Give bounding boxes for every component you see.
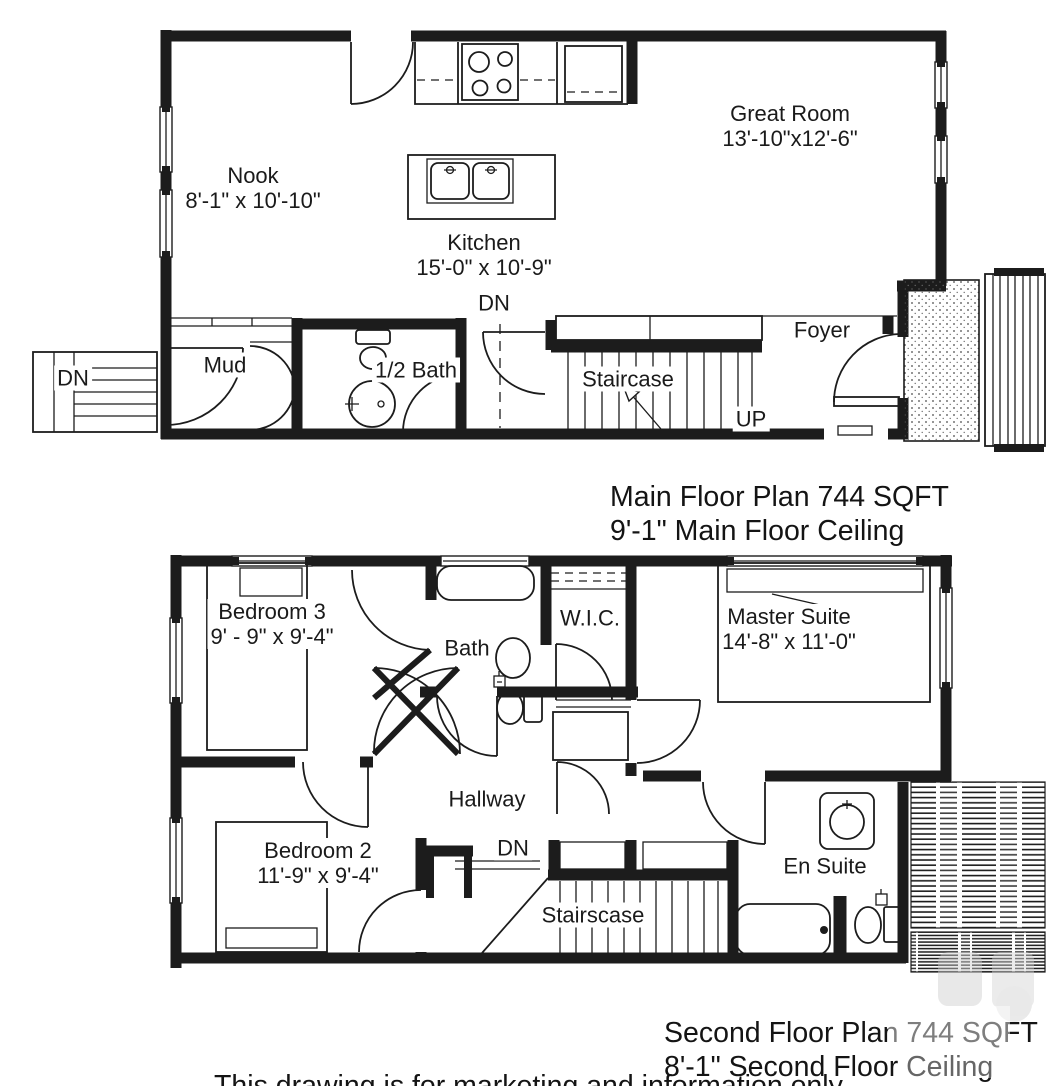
rear-deck: [911, 782, 1045, 972]
linen-closet: [553, 712, 628, 814]
room-dims: 15'-0" x 10'-9": [413, 255, 554, 280]
bathtub: [437, 566, 534, 600]
bathtub: [736, 904, 830, 955]
watermark-fade: [888, 1006, 1010, 1048]
main-floor-caption: Main Floor Plan 744 SQFT 9'-1" Main Floo…: [610, 480, 949, 548]
toilet-tank: [524, 694, 542, 722]
caption-line1: Main Floor Plan 744 SQFT: [610, 480, 949, 514]
window: [160, 60, 947, 258]
exterior-steps: [33, 352, 157, 432]
room-label-bedroom2: Bedroom 2 11'-9" x 9'-4": [254, 838, 381, 888]
room-name: Kitchen: [413, 230, 554, 255]
ensuite-door: [703, 782, 765, 844]
room-label-bath: Bath: [441, 636, 492, 661]
side-deck: [985, 272, 1045, 448]
room-label-master-suite: Master Suite 14'-8" x 11'-0": [719, 604, 859, 654]
room-label-kitchen: Kitchen 15'-0" x 10'-9": [413, 230, 554, 280]
room-label-staircase-second: Stairscase: [539, 903, 648, 928]
room-name: Nook: [182, 163, 323, 188]
marker-dn-second: DN: [494, 836, 532, 861]
bed: [207, 563, 307, 750]
room-dims: 14'-8" x 11'-0": [719, 629, 859, 654]
room-label-foyer: Foyer: [791, 318, 853, 343]
sink: [830, 805, 864, 839]
room-label-staircase: Staircase: [579, 367, 677, 392]
fridge: [565, 46, 622, 102]
sink: [496, 638, 530, 678]
room-dims: 9' - 9" x 9'-4": [207, 624, 336, 649]
room-name: Bedroom 3: [207, 599, 336, 624]
room-dims: 11'-9" x 9'-4": [254, 863, 381, 888]
kitchen-island-sink: [408, 155, 555, 219]
hallway-doors: [374, 668, 460, 754]
room-name: Great Room: [719, 101, 860, 126]
toilet: [855, 907, 881, 943]
room-label-nook: Nook 8'-1" x 10'-10": [182, 163, 323, 213]
basement-stair-corridor: [483, 324, 545, 428]
floor-plan-page: Nook 8'-1" x 10'-10" Kitchen 15'-0" x 10…: [0, 0, 1049, 1086]
room-name: Master Suite: [719, 604, 859, 629]
kitchen-counter: [415, 42, 628, 104]
room-label-en-suite: En Suite: [780, 854, 869, 879]
bath-door: [437, 696, 497, 756]
marker-dn-kitchen: DN: [475, 291, 513, 316]
stove: [462, 44, 518, 100]
room-name: Bedroom 2: [254, 838, 381, 863]
staircase-leader: [630, 393, 661, 429]
watermark-fade: [900, 1048, 992, 1078]
patio-door: [351, 42, 413, 104]
room-label-hallway: Hallway: [445, 787, 528, 812]
master-door: [637, 700, 700, 763]
foyer-door: [834, 334, 899, 435]
front-porch: [904, 280, 979, 441]
disclaimer-text: This drawing is for marketing and inform…: [214, 1069, 843, 1086]
marker-up: UP: [733, 407, 770, 432]
sink: [345, 381, 395, 427]
half-bath-door: [403, 374, 461, 432]
caption-line2: 9'-1" Main Floor Ceiling: [610, 514, 949, 548]
room-dims: 8'-1" x 10'-10": [182, 188, 323, 213]
marker-dn-exterior: DN: [54, 366, 92, 391]
room-label-wic: W.I.C.: [557, 606, 623, 631]
room-label-mud: Mud: [201, 353, 250, 378]
room-label-half-bath: 1/2 Bath: [372, 358, 460, 383]
room-label-great-room: Great Room 13'-10"x12'-6": [719, 101, 860, 151]
room-label-bedroom3: Bedroom 3 9' - 9" x 9'-4": [207, 599, 336, 649]
room-dims: 13'-10"x12'-6": [719, 126, 860, 151]
